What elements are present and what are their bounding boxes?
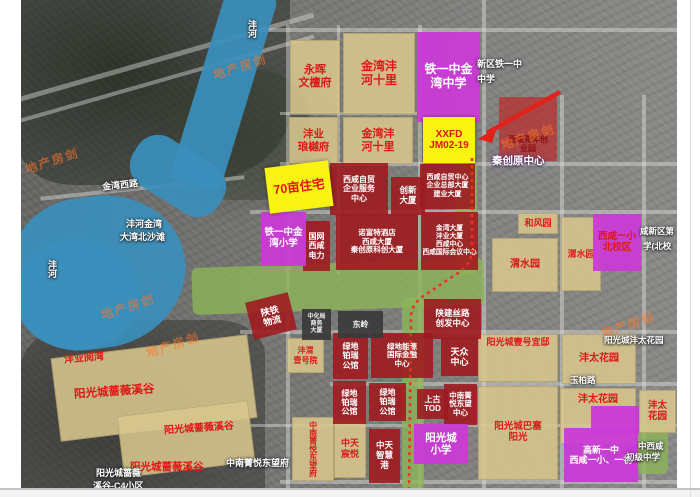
block-ludi-bairui-1: 绿地 铂瑞 公馆 <box>333 333 368 379</box>
plot-fengwei-yihaoyuan: 沣渭 壹号院 <box>287 338 324 373</box>
school-tieyizhong-jinwan-xiaoxue: 铁一中金 湾小学 <box>261 212 306 266</box>
bottom-frame-line <box>0 488 700 490</box>
school-xixianyixiao-beixiaoqu: 西咸一小 北校区 <box>593 214 641 271</box>
street-yubolu: 玉柏路 <box>570 374 596 386</box>
plot-xxfd-jm02-19: XXFD JM02-19 <box>423 117 475 163</box>
plot-zhongnan-jingyue-fu: 中南菁悦东望府 <box>292 417 334 481</box>
poi-xinqu-tieyizhong: 新区铁一中 <box>477 57 522 70</box>
poi-qinchuangyuan-zhongxin: 秦创原中心 <box>492 153 545 168</box>
block-nuofute-qinchuangyuan: 诺富特酒店 西咸大厦 秦创原科创大厦 <box>336 214 418 270</box>
satellite-map: 永晖 文檀府 金湾沣 河十里 沣业 琅樾府 金湾沣 河十里 和风园 渭水园 渭水… <box>0 0 700 497</box>
poi-zhongxue: 中学 <box>477 72 495 85</box>
block-zhonghuaju: 中化局 商务 大厦 <box>302 309 331 340</box>
block-ludi-bairui-2: 绿地 铂瑞 公馆 <box>333 381 366 424</box>
poi-zhongnan-dongwangfu: 中南菁悦东望府 <box>226 456 289 469</box>
block-tianzhong-zhongxin: 天众 中心 <box>441 338 478 376</box>
plot-yangguangcheng-basai: 阳光城巴塞 阳光 <box>478 386 558 480</box>
plot-zhongtian-chenyue: 中天 宸悦 <box>334 419 366 478</box>
block-jinwan-daxia: 金湾大厦 沣业大厦 西咸中心 西咸国际会议中心 <box>421 212 478 270</box>
poi-c4-line1: 阳光城蔷薇 <box>96 466 141 479</box>
label-qiangwei-xigu-3: 阳光城蔷薇溪谷 <box>130 461 204 473</box>
plot-fengye-langyuefu: 沣业 琅樾府 <box>289 117 338 164</box>
plot-yangguangcheng-yihao-yidi: 阳光城壹号宜邸 <box>478 334 558 382</box>
poi-chuji-zhongxue: 初级中学 <box>626 451 660 463</box>
lake <box>14 238 139 350</box>
block-ludi-nengyuan: 绿地能源 国际金融 中心 <box>371 333 433 378</box>
poi-fenghe-jinwan: 沣河金湾 <box>126 217 162 230</box>
left-margin <box>0 0 21 497</box>
poi-xianxinqu-frag1: 咸新区第 <box>640 225 674 237</box>
school-tieyizhong-jinwan-zhongxue: 铁一中金 湾中学 <box>417 32 480 122</box>
plot-jinwan-fenghe-shili-2: 金湾沣 河十里 <box>343 117 413 164</box>
block-guowang-dianli: 国网 西咸 电力 <box>303 221 330 271</box>
block-ludi-bairui-3: 绿地 铂瑞 公馆 <box>369 383 406 421</box>
school-yangguangcheng-xiaoxue: 阳光城 小学 <box>414 424 468 464</box>
poi-xianxinqu-frag2: 学(北校 <box>643 240 671 252</box>
right-frame-line <box>690 0 691 497</box>
plot-weishuiyuan-1: 渭水园 <box>492 238 558 292</box>
poi-beishatan: 大湾北沙滩 <box>120 230 165 243</box>
block-zimao-zongbu: 西咸自贸中心 企业总部大厦 建业大厦 <box>420 164 475 209</box>
plot-fengtai-huayuan-3: 沣太 花园 <box>639 390 676 433</box>
plot-70mu-zhuzhai: 70亩住宅 <box>264 160 333 213</box>
bottom-margin <box>0 490 700 497</box>
plot-yonghui-wentanfu: 永晖 文檀府 <box>290 40 340 114</box>
plot-jinwan-fenghe-shili-1: 金湾沣 河十里 <box>343 33 415 114</box>
block-shanjian-silu: 陕建丝路 创发中心 <box>424 299 481 339</box>
block-zimao-fuwu-zhongxin: 西咸自贸 企业服务 中心 <box>330 163 388 215</box>
block-zhongtian-zhihuigang: 中天 智慧 港 <box>369 429 400 483</box>
block-zhongnan-dongwang-center: 中南菁 悦东望 中心 <box>444 384 477 425</box>
right-margin <box>677 0 700 497</box>
block-dongling: 东岭 <box>338 311 383 338</box>
plot-hefengyuan: 和风园 <box>518 213 558 234</box>
river-label-fenghe-north: 沣河 <box>246 20 259 38</box>
lake-label-fenghe: 沣河 <box>46 260 59 278</box>
